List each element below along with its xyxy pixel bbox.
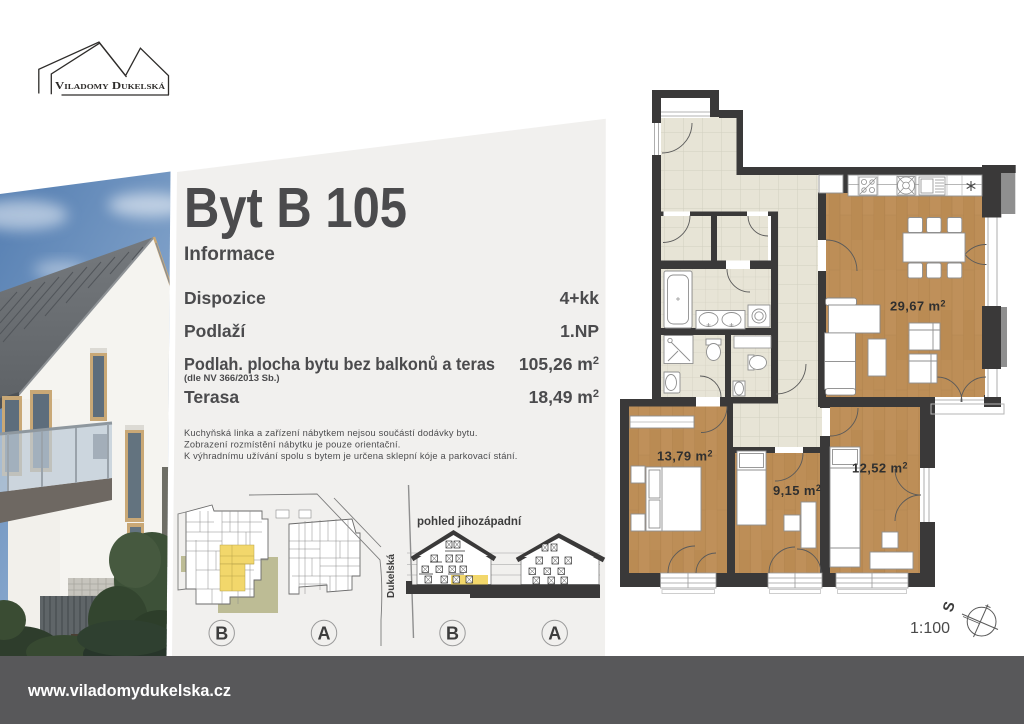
svg-text:1.NP: 1.NP: [560, 321, 599, 341]
svg-text:1:100: 1:100: [910, 620, 950, 637]
svg-text:9,15 m2: 9,15 m2: [773, 483, 821, 498]
svg-text:Kuchyňská linka a zařízení náb: Kuchyňská linka a zařízení nábytkem nejs…: [184, 428, 478, 438]
svg-text:13,79 m2: 13,79 m2: [657, 449, 713, 464]
svg-text:4+kk: 4+kk: [560, 288, 600, 308]
svg-text:B: B: [446, 624, 459, 644]
svg-text:K výhradnímu užívání spolu s b: K výhradnímu užívání spolu s bytem je ur…: [184, 451, 518, 461]
svg-text:A: A: [318, 624, 331, 644]
svg-text:Dispozice: Dispozice: [184, 288, 266, 308]
svg-text:Viladomy Dukelská: Viladomy Dukelská: [55, 81, 165, 92]
svg-text:29,67 m2: 29,67 m2: [890, 299, 946, 314]
svg-text:(dle NV 366/2013 Sb.): (dle NV 366/2013 Sb.): [184, 373, 280, 384]
svg-text:Terasa: Terasa: [184, 387, 239, 407]
svg-text:Podlaží: Podlaží: [184, 321, 246, 341]
svg-text:Byt B 105: Byt B 105: [184, 176, 407, 240]
svg-text:B: B: [215, 624, 228, 644]
svg-text:S: S: [940, 599, 959, 614]
svg-text:12,52 m2: 12,52 m2: [852, 461, 908, 476]
svg-text:www.viladomydukelska.cz: www.viladomydukelska.cz: [27, 682, 231, 700]
svg-text:Dukelská: Dukelská: [386, 554, 397, 598]
svg-text:Informace: Informace: [184, 244, 275, 265]
svg-text:pohled jihozápadní: pohled jihozápadní: [417, 516, 522, 528]
svg-text:Podlah. plocha bytu bez balkon: Podlah. plocha bytu bez balkonů a teras: [184, 354, 495, 374]
svg-text:Zobrazení rozmístění nábytku j: Zobrazení rozmístění nábytku je pouze or…: [184, 440, 401, 450]
svg-text:105,26 m2: 105,26 m2: [519, 354, 599, 374]
svg-text:A: A: [548, 624, 561, 644]
svg-text:18,49 m2: 18,49 m2: [529, 387, 599, 407]
